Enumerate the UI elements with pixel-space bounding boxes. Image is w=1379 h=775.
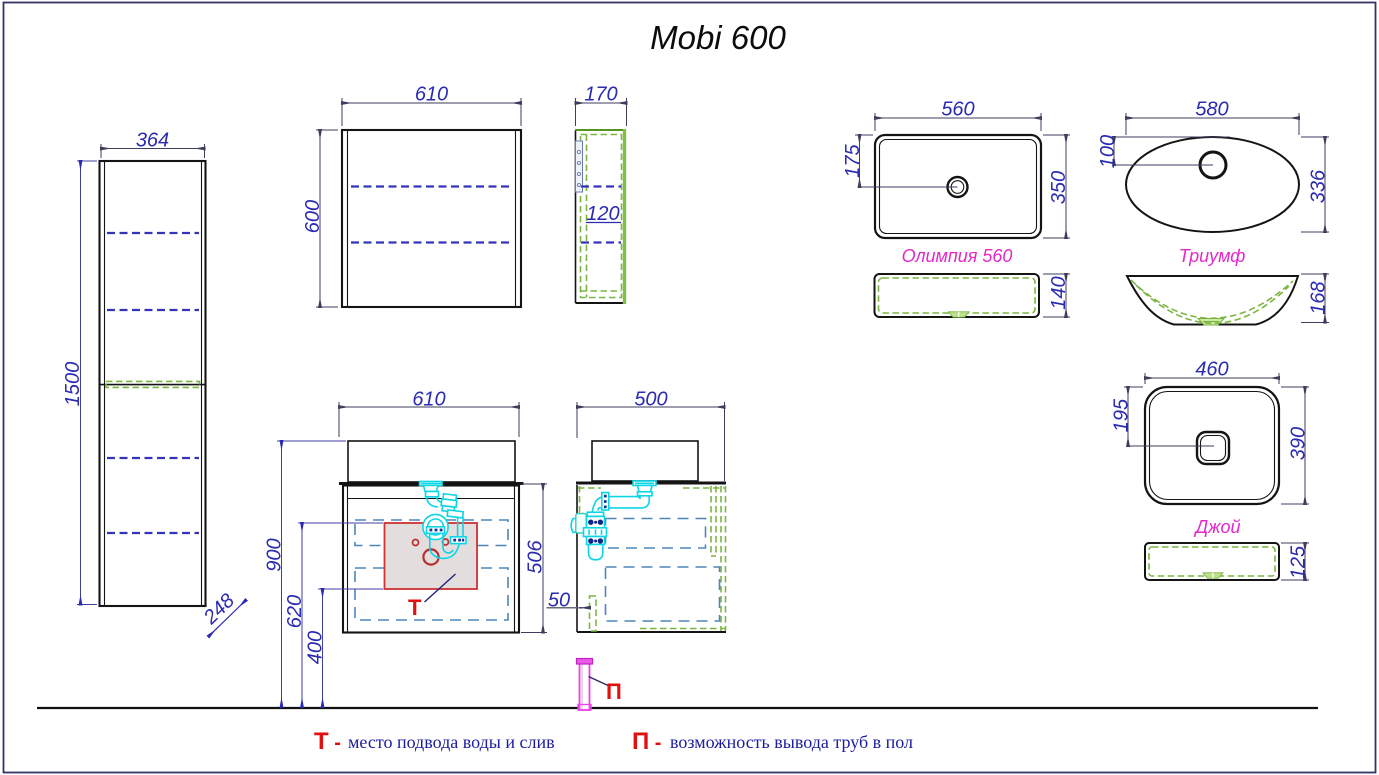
svg-text:1500: 1500 (62, 362, 84, 407)
svg-text:125: 125 (1288, 545, 1310, 579)
svg-text:610: 610 (412, 389, 445, 411)
svg-text:место подвода воды и слив: место подвода воды и слив (348, 732, 555, 752)
svg-text:460: 460 (1195, 359, 1228, 381)
svg-text:506: 506 (525, 539, 547, 573)
svg-text:168: 168 (1308, 281, 1330, 314)
svg-text:580: 580 (1195, 99, 1228, 121)
svg-text:Mobi 600: Mobi 600 (650, 19, 786, 56)
svg-text:возможность вывода труб в пол: возможность вывода труб в пол (670, 732, 913, 752)
svg-text:336: 336 (1308, 169, 1330, 203)
svg-text:100: 100 (1097, 135, 1119, 168)
svg-text:П -: П - (632, 728, 661, 755)
svg-text:350: 350 (1048, 171, 1070, 204)
svg-text:195: 195 (1111, 398, 1133, 432)
svg-text:364: 364 (136, 130, 169, 152)
svg-text:140: 140 (1048, 276, 1070, 309)
svg-text:Т: Т (408, 595, 422, 620)
svg-text:400: 400 (305, 631, 327, 664)
svg-text:Т -: Т - (314, 728, 341, 755)
svg-text:170: 170 (584, 84, 617, 106)
svg-text:120: 120 (586, 203, 619, 225)
svg-text:600: 600 (302, 200, 324, 233)
svg-text:620: 620 (284, 595, 306, 628)
svg-text:Триумф: Триумф (1179, 246, 1246, 266)
svg-text:390: 390 (1288, 427, 1310, 460)
svg-text:Олимпия 560: Олимпия 560 (902, 246, 1013, 266)
svg-text:500: 500 (634, 389, 667, 411)
svg-text:560: 560 (941, 99, 974, 121)
svg-text:П: П (606, 679, 622, 704)
svg-text:900: 900 (264, 538, 286, 571)
svg-text:175: 175 (842, 143, 864, 177)
svg-text:610: 610 (415, 84, 448, 106)
svg-text:Джой: Джой (1193, 517, 1240, 537)
